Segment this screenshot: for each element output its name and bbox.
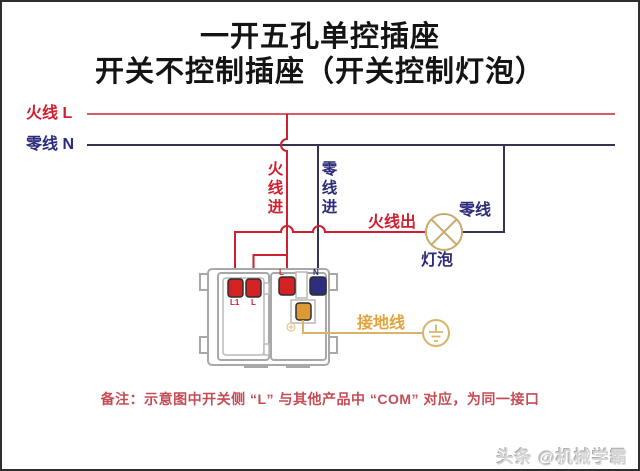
switch-terminal-l1 <box>228 279 243 297</box>
socket-terminal-live <box>279 277 295 295</box>
divider-slot <box>264 344 269 355</box>
socket-live-label: L <box>279 269 284 277</box>
switch-terminal-l <box>246 279 261 297</box>
lamp-label: 灯泡 <box>421 252 453 270</box>
live-in-label: 火线进 <box>267 161 284 218</box>
watermark: 头条 @机械学霸 <box>497 443 628 468</box>
lamp-neutral-label: 零线 <box>459 202 491 220</box>
wiring-diagram: 一开五孔单控插座 开关不控制插座（开关控制灯泡） <box>0 0 640 471</box>
switch-socket-device <box>200 269 337 367</box>
footnote: 备注：示意图中开关侧 “L” 与其他产品中 “COM” 对应，为同一接口 <box>2 389 638 409</box>
socket-terminal-ground <box>296 303 311 320</box>
switch-terminal-l1-label: L1 <box>230 299 239 307</box>
socket-slot <box>296 272 307 298</box>
ground-label: 接地线 <box>357 315 405 333</box>
socket-terminal-neutral <box>310 277 326 295</box>
divider-slot <box>264 283 269 294</box>
neutral-bus-label: 零线 N <box>26 136 74 154</box>
switch-terminal-l-label: L <box>251 299 256 307</box>
lamp-icon <box>426 214 462 250</box>
neutral-in-label: 零线进 <box>321 161 338 218</box>
ground-symbol-icon <box>423 320 449 346</box>
socket-neutral-label: N <box>313 269 319 277</box>
live-bus-label: 火线 L <box>26 105 72 123</box>
live-out-label: 火线出 <box>368 214 416 232</box>
